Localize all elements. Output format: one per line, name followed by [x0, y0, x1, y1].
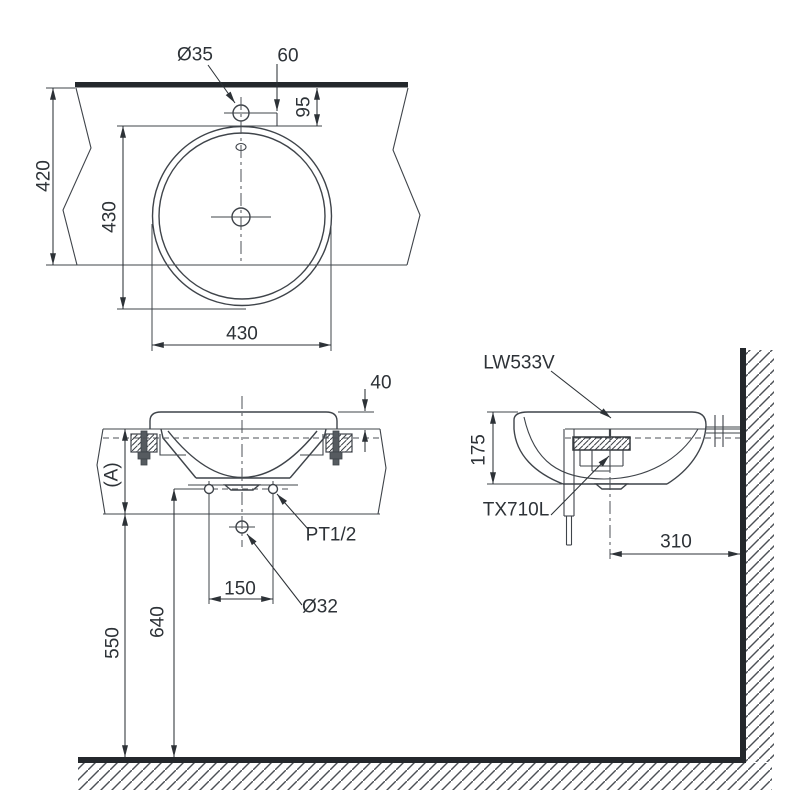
- dim-supply-hole-spacing: 150: [224, 579, 256, 600]
- supply-hole-left: [205, 485, 214, 494]
- dim-drain-center-to-wall: 310: [660, 532, 692, 553]
- supply-pipe: [706, 415, 740, 447]
- label-supply-connection: PT1/2: [306, 525, 357, 546]
- basin-inner-rim: [159, 133, 325, 299]
- label-drain-model: TX710L: [483, 500, 550, 521]
- wall-edge-line: [75, 82, 408, 88]
- dim-faucet-hole-diameter: Ø35: [177, 45, 213, 66]
- counter-break-right: [393, 88, 420, 265]
- dim-counter-depth: 420: [34, 160, 55, 192]
- basin-outer-rim: [153, 127, 332, 306]
- side-view: LW533V 175 TX710L 310: [469, 353, 741, 560]
- supply-hole-right: [269, 485, 278, 494]
- dim-basin-diameter-width: 430: [226, 324, 258, 345]
- dim-basin-edge-to-wall: 95: [294, 96, 315, 117]
- dim-supply-height: 640: [148, 606, 169, 638]
- leader-basin-model: [551, 371, 611, 418]
- floor-hatching: [78, 763, 772, 790]
- wall-hatching: [746, 350, 774, 762]
- counter-break-right-front: [378, 429, 386, 514]
- technical-drawing-page: Ø35 60 95 420 430 430: [0, 0, 800, 800]
- dim-counter-underside-height: 550: [103, 627, 124, 659]
- floor-line: [78, 757, 746, 763]
- popup-boss-side: [596, 484, 627, 489]
- basin-front-fill: [150, 412, 337, 478]
- wall-line: [740, 348, 746, 763]
- lavatory-installation-drawing: Ø35 60 95 420 430 430: [0, 0, 800, 800]
- leader-supply-thread: [277, 494, 308, 529]
- dim-waste-hole-diameter: Ø32: [302, 597, 338, 618]
- label-basin-model: LW533V: [483, 353, 555, 374]
- dim-counter-thickness: (A): [102, 462, 123, 487]
- dim-rim-above-counter: 40: [370, 373, 391, 394]
- dim-basin-height: 175: [469, 434, 490, 466]
- plan-view: Ø35 60 95 420 430 430: [34, 45, 421, 352]
- dim-faucet-center-to-wall: 60: [277, 46, 298, 67]
- counter-break-left: [63, 88, 91, 265]
- dim-basin-diameter-depth: 430: [100, 201, 121, 233]
- front-view: 40 (A) PT1/2 150 Ø32 640 550: [97, 373, 392, 758]
- drain-flange: [573, 437, 630, 450]
